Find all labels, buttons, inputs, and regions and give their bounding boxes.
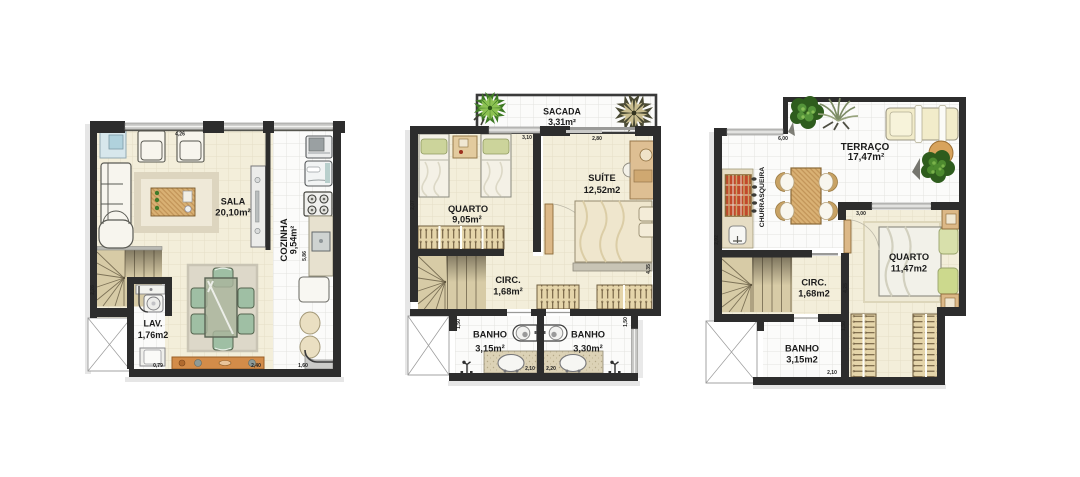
svg-text:4,25: 4,25 [843,283,849,293]
svg-text:2,07: 2,07 [410,200,416,210]
svg-text:CHURRASQUEIRA: CHURRASQUEIRA [759,167,766,228]
svg-text:BANHO: BANHO [571,330,605,340]
svg-text:3,00: 3,00 [856,211,866,217]
svg-text:CIRC.: CIRC. [801,278,826,288]
svg-text:0,79: 0,79 [153,363,163,369]
svg-text:SUÍTE: SUÍTE [588,173,615,183]
svg-text:5,86: 5,86 [302,251,308,261]
svg-text:20,10m²: 20,10m² [215,208,250,219]
svg-text:2,80: 2,80 [592,136,602,142]
svg-text:11,47m2: 11,47m2 [891,264,927,274]
svg-text:4,35: 4,35 [646,264,652,274]
svg-text:9,05m²: 9,05m² [452,215,481,225]
svg-text:12,52m2: 12,52m2 [584,185,621,195]
svg-text:2,20: 2,20 [546,366,556,372]
svg-text:1,60: 1,60 [298,363,308,369]
svg-text:3,30m²: 3,30m² [573,344,602,354]
svg-text:2,26: 2,26 [90,285,96,295]
svg-text:SACADA: SACADA [543,107,581,117]
svg-text:1,68m²: 1,68m² [493,287,522,297]
svg-text:2,40: 2,40 [251,363,261,369]
svg-text:3,15m²: 3,15m² [475,344,504,354]
svg-text:3,15m2: 3,15m2 [786,355,818,365]
svg-text:2,92: 2,92 [714,235,720,245]
svg-text:CIRC.: CIRC. [495,275,520,285]
svg-text:QUARTO: QUARTO [889,252,929,262]
svg-text:1,50: 1,50 [841,321,847,331]
svg-text:1,50: 1,50 [623,317,629,327]
svg-text:SALA: SALA [221,197,246,207]
svg-text:3,31m²: 3,31m² [548,117,576,127]
svg-text:BANHO: BANHO [785,344,819,354]
svg-text:17,47m²: 17,47m² [848,152,885,163]
svg-text:QUARTO: QUARTO [448,204,488,214]
svg-text:BANHO: BANHO [473,330,507,340]
svg-text:1,50: 1,50 [456,319,462,329]
svg-text:9,54m²: 9,54m² [289,226,299,255]
svg-text:1,76m2: 1,76m2 [138,330,169,340]
svg-text:LAV.: LAV. [143,319,162,329]
svg-text:3,10: 3,10 [522,135,532,141]
svg-text:4,26: 4,26 [175,132,185,138]
svg-text:6,00: 6,00 [778,136,788,142]
svg-text:2,10: 2,10 [827,370,837,376]
svg-text:1,68m2: 1,68m2 [798,289,830,299]
svg-text:2,10: 2,10 [525,366,535,372]
